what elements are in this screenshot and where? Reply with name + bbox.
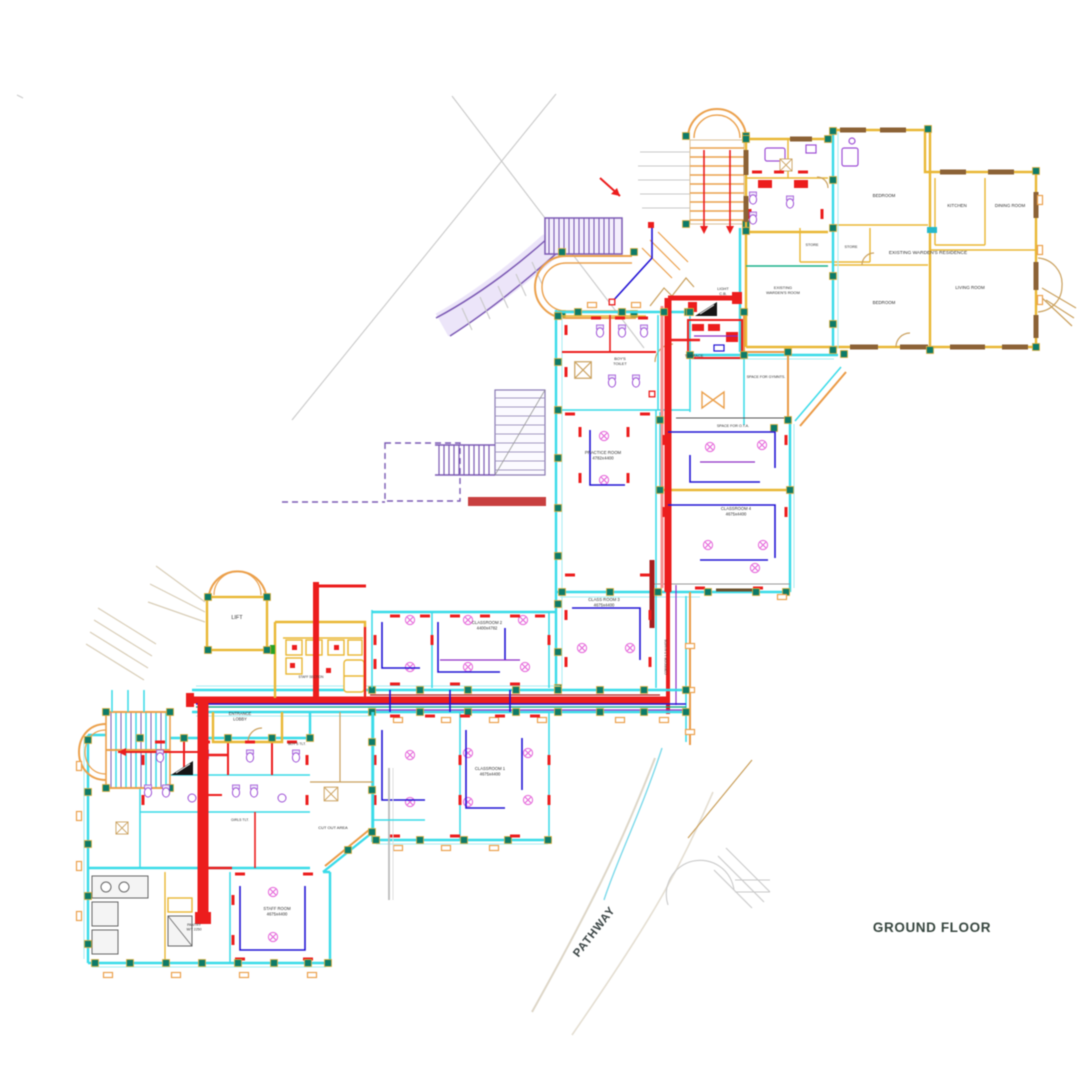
upper-middle-block — [555, 222, 848, 745]
label-store-2: STORE — [844, 245, 857, 249]
label-kitchen: KITCHEN — [947, 203, 966, 208]
label-lift: LIFT — [231, 615, 243, 621]
labels-layer: GROUND FLOORPATHWAYEXISTING WARDEN'S RES… — [186, 193, 1025, 960]
label-bedroom-1: BEDROOM — [873, 193, 896, 198]
pathway-site — [532, 748, 770, 1035]
label-pantry: PANTRYW/T 2250 — [186, 923, 201, 932]
central-corridor — [186, 686, 690, 723]
label-boys-toilet: BOY'STOILET — [613, 356, 627, 366]
label-classroom-1: CLASSROOM 14675x4400 — [475, 766, 506, 776]
label-classroom-4: CLASSROOM 44675x4400 — [721, 506, 752, 516]
label-dining-room: DINING ROOM — [995, 203, 1026, 208]
label-cut-out-area: CUT OUT AREA — [318, 825, 348, 830]
label-light-cb: LIGHTC.B. — [717, 286, 729, 296]
label-staff-section: STAFF SECTION — [299, 675, 325, 679]
label-store-1: STORE — [805, 243, 818, 247]
label-space-gym: SPACE FOR GYMNTS. — [747, 375, 786, 379]
label-classroom-2: CLASSROOM 24400x4782 — [472, 620, 503, 630]
label-girls-tlt: GIRLS TLT. — [231, 818, 249, 822]
ground-floor-plan-drawing: GROUND FLOOR — [0, 0, 1080, 1080]
middle-classrooms — [372, 610, 556, 900]
label-living-room: LIVING ROOM — [955, 285, 985, 290]
lower-left-block — [77, 566, 376, 978]
floor-plan-page: GROUND FLOOR — [0, 0, 1080, 1080]
label-boys-tlt: BOY'S TLT. — [288, 742, 306, 746]
label-residence-title: EXISTING WARDEN'S RESIDENCE — [889, 250, 967, 256]
label-terrace: TERRACE — [685, 353, 704, 358]
label-wardens-room: EXISTINGWARDEN'S ROOM — [766, 285, 800, 295]
label-bedroom-2: BEDROOM — [873, 300, 896, 305]
label-classroom-3: CLASS ROOM 34675x4400 — [588, 597, 620, 607]
label-corridor-v: CORRIDOR 1.5 M WIDE — [664, 639, 668, 674]
label-space-ota: SPACE FOR O.T.A. — [717, 424, 749, 428]
label-ground-floor: GROUND FLOOR — [873, 920, 991, 935]
mid-stairs — [282, 390, 546, 506]
label-pathway: PATHWAY — [571, 905, 618, 960]
label-staff-room: STAFF ROOM4675x4400 — [263, 906, 291, 916]
